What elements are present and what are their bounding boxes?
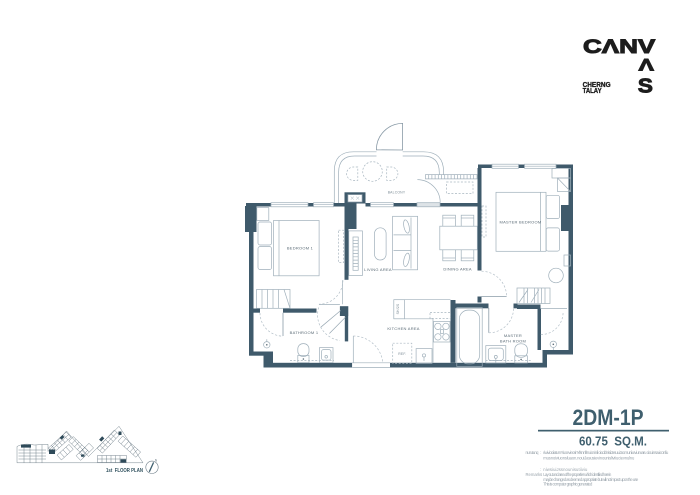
svg-text:Λ: Λ xyxy=(639,55,655,74)
svg-text:BEDROOM 1: BEDROOM 1 xyxy=(287,246,314,251)
svg-text:2DM-1P: 2DM-1P xyxy=(573,405,644,430)
svg-text::: : xyxy=(540,450,541,455)
svg-text::: : xyxy=(540,472,541,477)
svg-text:nunutvnq: nunutvnq xyxy=(526,450,540,455)
svg-text:SH/2S: SH/2S xyxy=(396,303,400,314)
svg-text:MASTER BEDROOM: MASTER BEDROOM xyxy=(500,220,542,225)
svg-text:BATHROOM 1: BATHROOM 1 xyxy=(290,330,319,335)
svg-text:BALCONY: BALCONY xyxy=(388,191,406,195)
svg-text:riwiviooiiaturnYiuoevieorinYil: riwiviooiiaturnYiuoevieorinYilsnnflrnuio… xyxy=(543,450,669,455)
svg-text:TALAY: TALAY xyxy=(583,86,602,95)
svg-text:DINING AREA: DINING AREA xyxy=(443,267,472,272)
svg-text:N: N xyxy=(155,459,158,463)
svg-text:LIVING AREA: LIVING AREA xyxy=(364,267,392,272)
svg-text:60.75 SQ.M.: 60.75 SQ.M. xyxy=(579,433,647,448)
svg-text:KITCHEN AREA: KITCHEN AREA xyxy=(387,326,419,331)
svg-text:1st FLOOR PLAN: 1st FLOOR PLAN xyxy=(106,468,143,474)
svg-text:This is computer graphic gener: This is computer graphic generated xyxy=(543,481,593,486)
svg-text:REF.: REF. xyxy=(398,352,406,356)
svg-text:BATH ROOM: BATH ROOM xyxy=(500,339,526,344)
svg-text:MASTER: MASTER xyxy=(504,333,522,338)
svg-text:S: S xyxy=(638,75,653,97)
svg-text:rnusnoiviuonsluaon.nouiJasusie: rnusnoiviuonsluaon.nouiJasusievinounisli… xyxy=(543,455,635,460)
